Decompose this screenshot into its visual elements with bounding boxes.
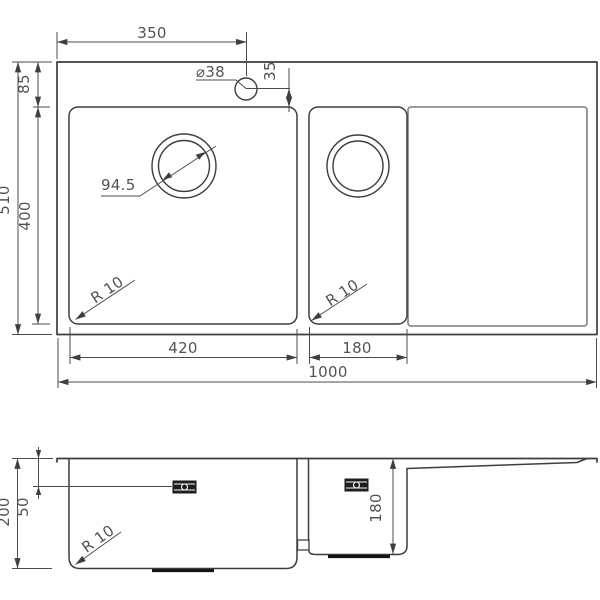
sink-technical-drawing: 350 ⌀38 35 85 400 51 [0, 0, 600, 600]
section-view: 200 50 180 R 10 [0, 447, 597, 571]
radius-section-bowl-label: R 10 [78, 521, 117, 556]
dim-faucet-diameter-label: ⌀38 [196, 63, 225, 81]
left-drain-outer [152, 134, 216, 198]
section-left-bowl [69, 459, 297, 569]
section-divider-notch [298, 540, 310, 550]
dim-400-label: 400 [16, 201, 34, 231]
right-drain-outer [327, 135, 389, 197]
dim-400: 400 [16, 107, 50, 324]
radius-left-bowl-label: R 10 [87, 272, 126, 307]
section-drainboard-line [407, 459, 587, 469]
drawing-svg: 350 ⌀38 35 85 400 51 [0, 0, 600, 600]
dim-1000-label: 1000 [308, 363, 347, 381]
dim-180-top: 180 [310, 327, 408, 364]
dim-180-top-label: 180 [342, 339, 372, 357]
dim-420: 420 [70, 327, 297, 364]
radius-left-bowl: R 10 [76, 272, 136, 319]
dim-180-section: 180 [367, 459, 393, 555]
top-view: 350 ⌀38 35 85 400 51 [0, 24, 597, 388]
dim-50: 50 [14, 447, 172, 517]
dim-510-label: 510 [0, 185, 13, 215]
radius-right-bowl-label: R 10 [322, 276, 362, 310]
left-waste-symbol [173, 481, 197, 494]
dim-1000: 1000 [58, 338, 597, 388]
dim-350-label: 350 [137, 24, 167, 42]
section-rim-line [57, 459, 597, 463]
dim-200-label: 200 [0, 497, 13, 527]
right-waste-symbol [345, 479, 369, 492]
radius-section-bowl: R 10 [76, 521, 122, 564]
left-drain-inner [159, 141, 210, 192]
dim-180-section-label: 180 [367, 493, 385, 523]
drainboard-outline [408, 107, 587, 326]
radius-right-bowl: R 10 [312, 276, 368, 321]
dim-drain-diameter-label: 94.5 [101, 176, 136, 194]
dim-35-label: 35 [261, 61, 279, 81]
dim-510: 510 [0, 62, 52, 335]
right-drain-inner [333, 141, 383, 191]
dim-35: 35 [261, 61, 289, 112]
section-right-bowl [309, 459, 408, 555]
dim-50-label: 50 [14, 497, 32, 517]
dim-420-label: 420 [168, 339, 198, 357]
